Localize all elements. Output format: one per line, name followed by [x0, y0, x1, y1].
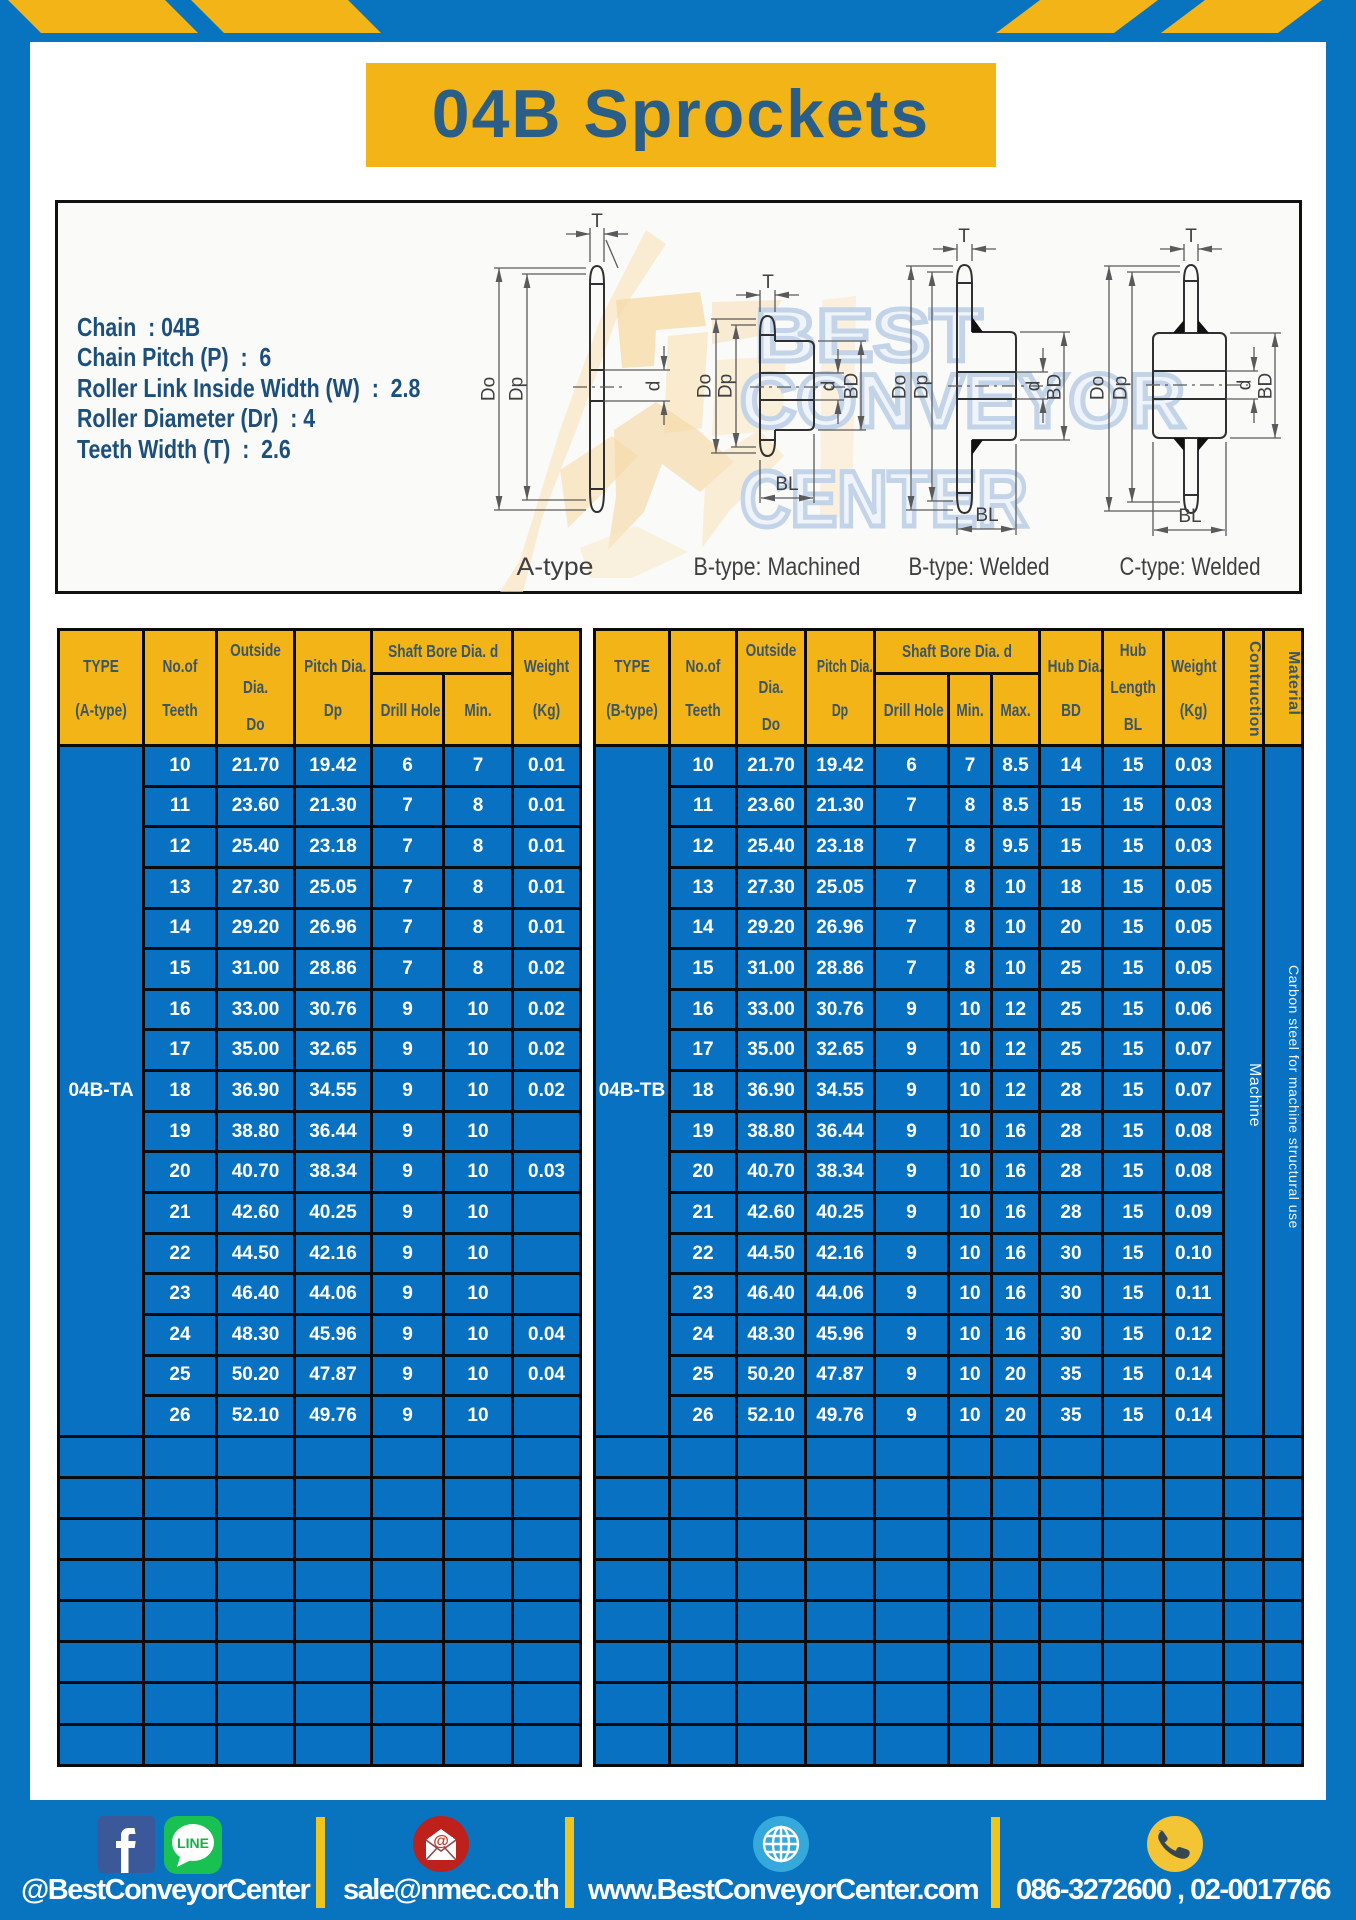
svg-text:@: @	[433, 1833, 449, 1850]
svg-text:LINE: LINE	[177, 1835, 209, 1851]
